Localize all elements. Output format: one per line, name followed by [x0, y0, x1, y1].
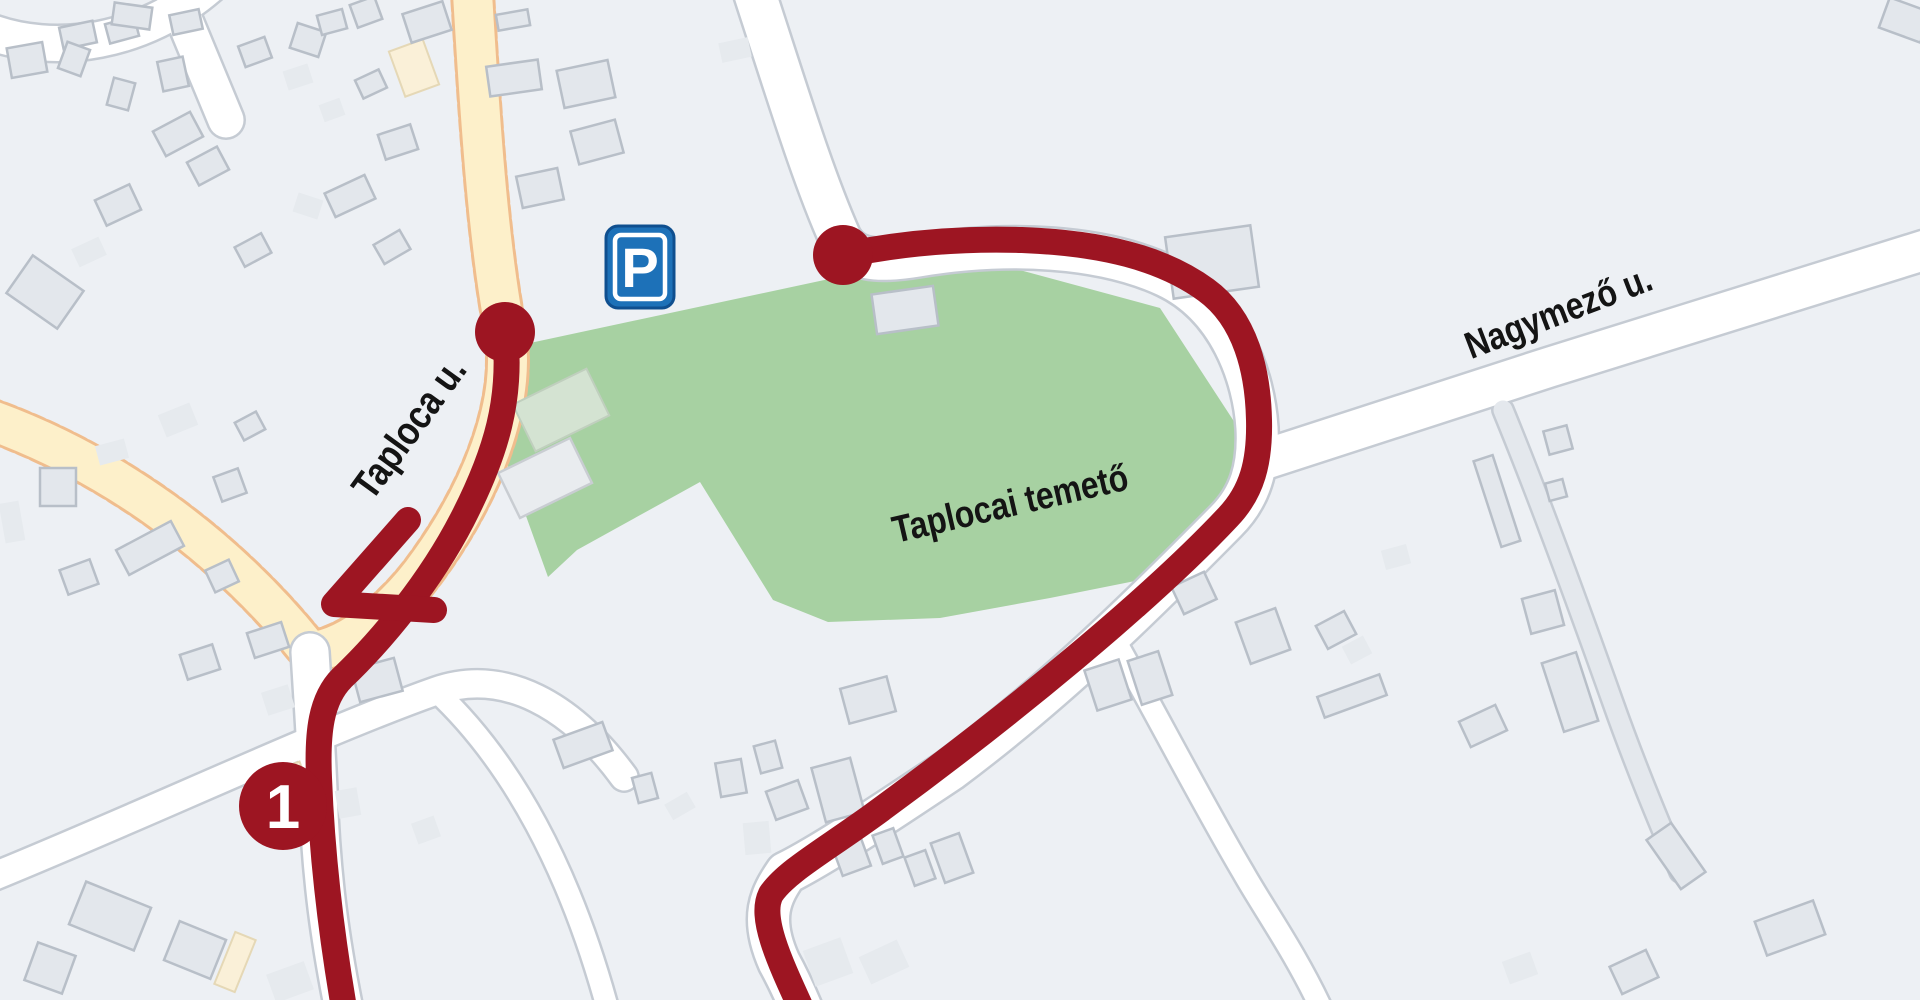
parking-sign-letter: P	[621, 236, 658, 299]
route-marker-number: 1	[266, 773, 300, 842]
route-endpoint-1	[475, 302, 535, 362]
building	[157, 57, 189, 92]
map-svg[interactable]: PTaploca u.Nagymező u.Taplocai temető1	[0, 0, 1920, 1000]
building	[872, 286, 939, 334]
route-endpoint-2	[813, 225, 873, 285]
building	[112, 2, 153, 29]
building	[1522, 590, 1564, 634]
building	[40, 468, 76, 506]
building	[715, 759, 747, 797]
building	[1545, 479, 1567, 501]
building	[1543, 425, 1572, 454]
building	[486, 60, 542, 97]
building	[516, 168, 564, 208]
map-viewport[interactable]: PTaploca u.Nagymező u.Taplocai temető1	[0, 0, 1920, 1000]
building	[743, 821, 772, 855]
building	[7, 42, 48, 78]
